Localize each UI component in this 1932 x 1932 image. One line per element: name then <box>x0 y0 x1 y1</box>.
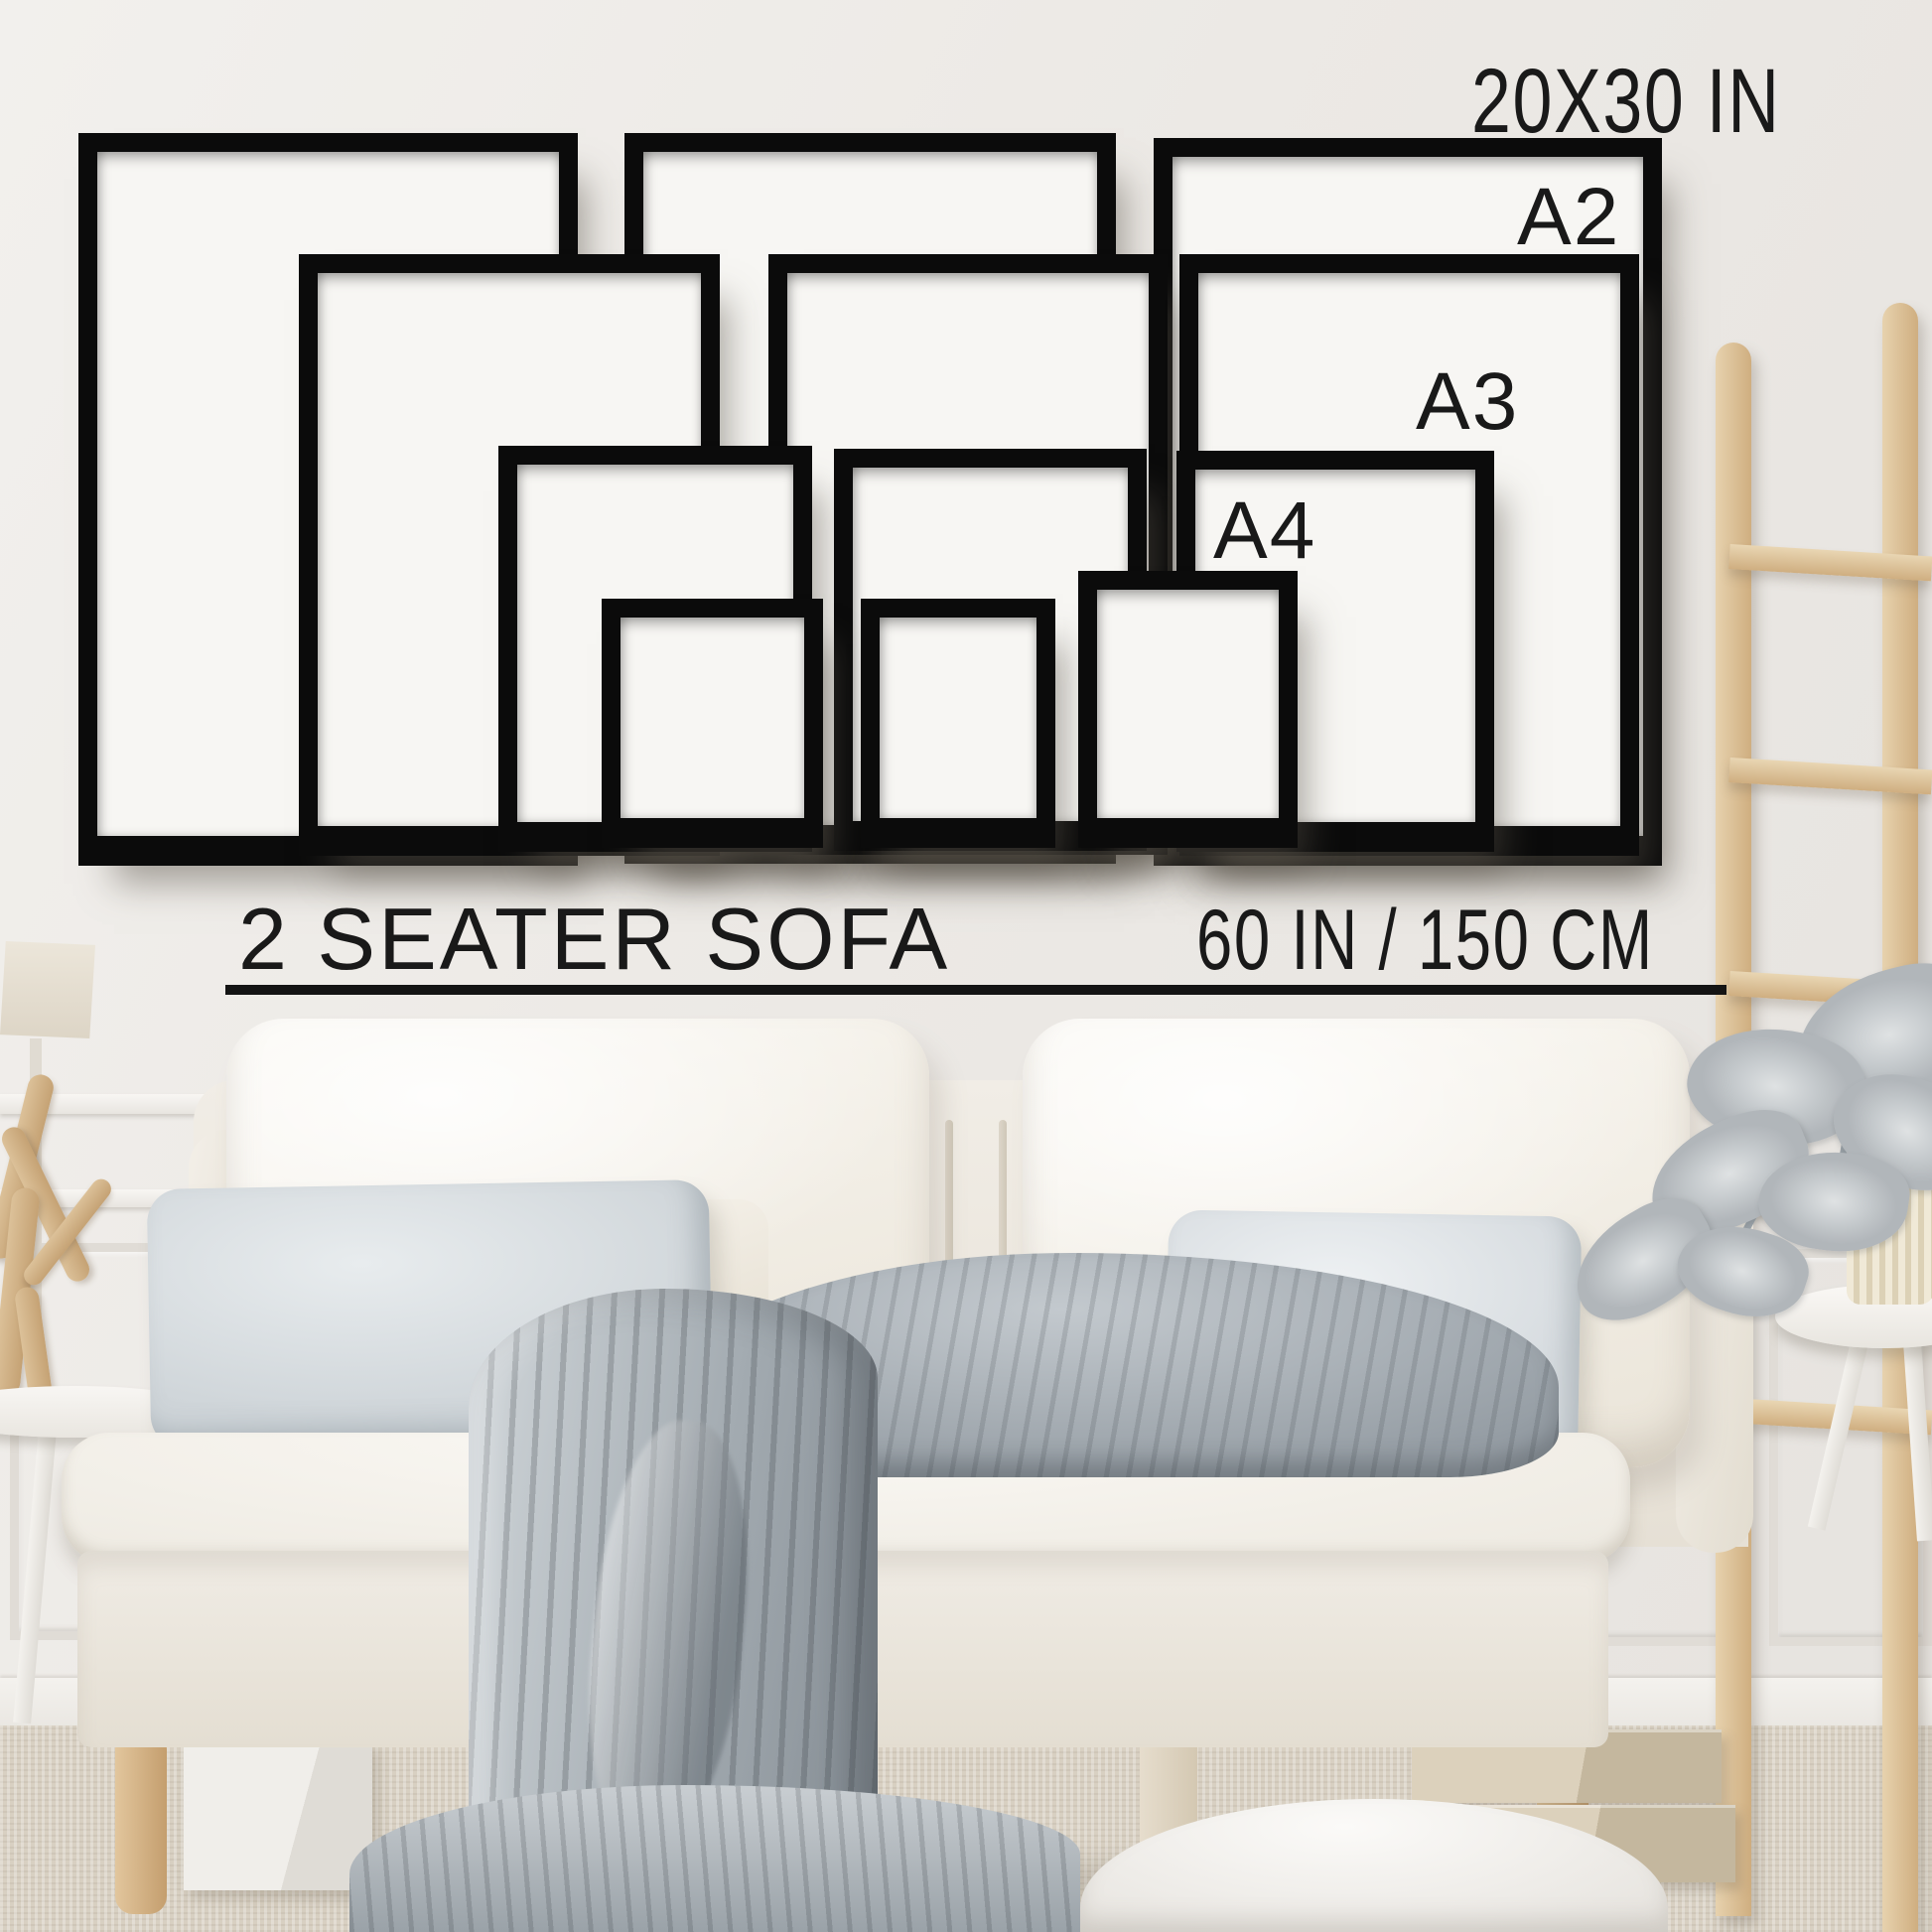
frame-a4-left <box>602 599 823 848</box>
storage-box-white <box>184 1741 372 1890</box>
frame-a4-right <box>1078 571 1298 848</box>
label-sofa-width: 60 IN / 150 CM <box>1196 897 1654 983</box>
label-20x30-in: 20X30 IN <box>1471 56 1781 147</box>
lamp-shade <box>0 941 95 1038</box>
sofa-leg-wood-left <box>115 1739 167 1914</box>
label-a3: A3 <box>1416 361 1519 443</box>
label-a4: A4 <box>1213 490 1316 572</box>
label-2-seater-sofa: 2 SEATER SOFA <box>238 896 950 983</box>
label-a2: A2 <box>1517 177 1620 258</box>
size-guide-scene: 20X30 IN A2 A3 A4 2 SEATER SOFA 60 IN / … <box>0 0 1932 1932</box>
frame-a4-center <box>861 599 1055 848</box>
